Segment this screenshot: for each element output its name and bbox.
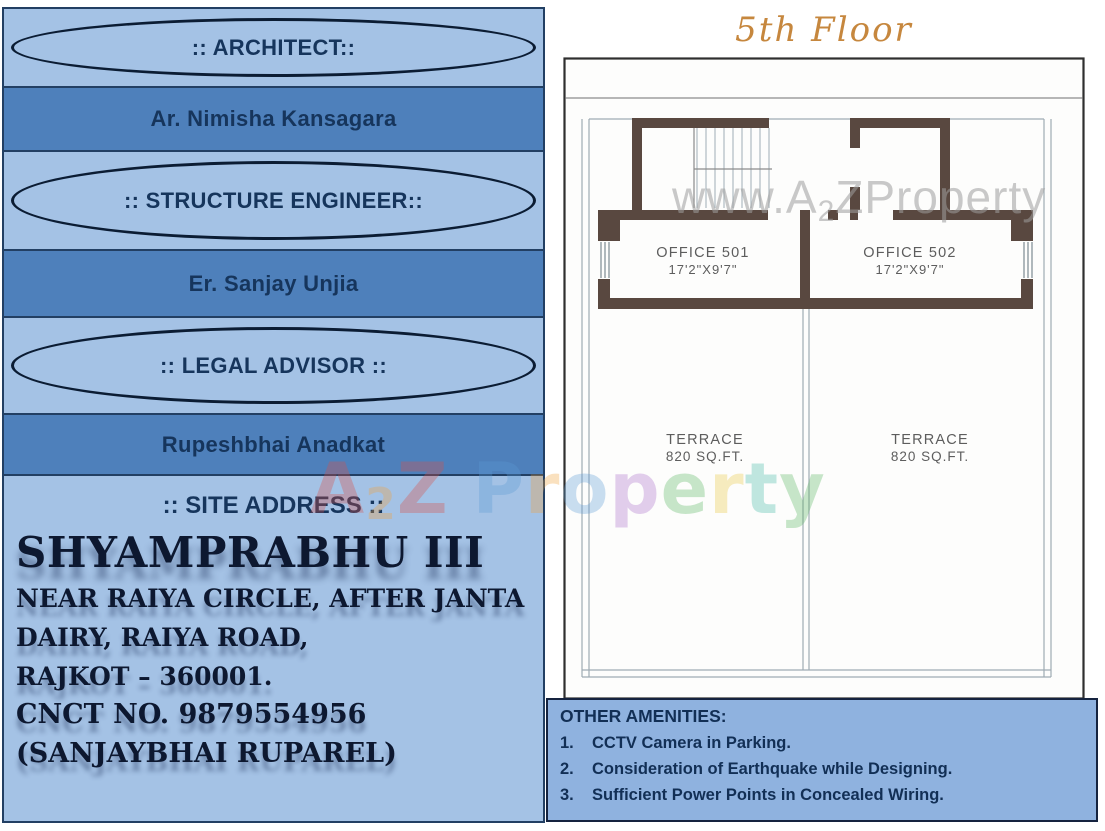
amenities-title: OTHER AMENITIES: [560,706,1084,727]
structure-engineer-header-band: :: STRUCTURE ENGINEER:: [4,152,543,249]
terrace-left-area: 820 SQ.FT. [666,449,744,464]
site-address-section: :: SITE ADDRESS :: SHYAMPRABHU III NEAR … [4,476,543,821]
structure-engineer-name: Er. Sanjay Unjia [189,271,359,297]
structure-engineer-header-label: :: STRUCTURE ENGINEER:: [124,188,423,214]
amenity-number: 2. [560,760,592,779]
office-501-label: OFFICE 501 [656,245,749,261]
address-line: NEAR RAIYA CIRCLE, AFTER JANTA [16,581,543,616]
info-panel: :: ARCHITECT:: Ar. Nimisha Kansagara :: … [2,7,545,823]
legal-advisor-name-band: Rupeshbhai Anadkat [4,413,543,476]
architect-header-band: :: ARCHITECT:: [4,9,543,86]
project-name: SHYAMPRABHU III [16,528,543,577]
amenity-number: 3. [560,786,592,805]
amenity-item: 2. Consideration of Earthquake while Des… [560,760,1084,779]
amenity-text: Sufficient Power Points in Concealed Wir… [592,786,944,805]
site-address-heading: :: SITE ADDRESS :: [4,492,543,520]
contact-number: CNCT NO. 9879554956 [16,696,543,733]
amenity-item: 1. CCTV Camera in Parking. [560,734,1084,753]
plan-outer-border [565,59,1084,699]
address-line: DAIRY, RAIYA ROAD, [16,620,543,655]
architect-header-label: :: ARCHITECT:: [192,35,355,61]
architect-name-band: Ar. Nimisha Kansagara [4,86,543,152]
structure-engineer-name-band: Er. Sanjay Unjia [4,249,543,318]
office-501-size: 17'2"X9'7" [668,262,737,277]
amenity-text: CCTV Camera in Parking. [592,734,791,753]
brochure-page: :: ARCHITECT:: Ar. Nimisha Kansagara :: … [0,0,1105,831]
contact-person: (SANJAYBHAI RUPAREL) [16,735,543,772]
office-502-size: 17'2"X9'7" [875,262,944,277]
legal-advisor-header-label: :: LEGAL ADVISOR :: [160,353,387,379]
office-502-label: OFFICE 502 [863,245,956,261]
floor-plan-drawing: OFFICE 501 17'2"X9'7" OFFICE 502 17'2"X9… [563,57,1085,700]
staircase-treads [694,128,772,208]
legal-advisor-name: Rupeshbhai Anadkat [162,432,385,458]
amenity-number: 1. [560,734,592,753]
address-line: RAJKOT – 360001. [16,659,543,694]
terrace-right-area: 820 SQ.FT. [891,449,969,464]
floor-title: 5th Floor [563,10,1085,50]
terrace-right-label: TERRACE [891,432,969,448]
amenity-text: Consideration of Earthquake while Design… [592,760,952,779]
legal-advisor-header-band: :: LEGAL ADVISOR :: [4,318,543,413]
amenities-box: OTHER AMENITIES: 1. CCTV Camera in Parki… [546,698,1098,822]
amenity-item: 3. Sufficient Power Points in Concealed … [560,786,1084,805]
architect-name: Ar. Nimisha Kansagara [151,106,397,132]
terrace-left-label: TERRACE [666,432,744,448]
